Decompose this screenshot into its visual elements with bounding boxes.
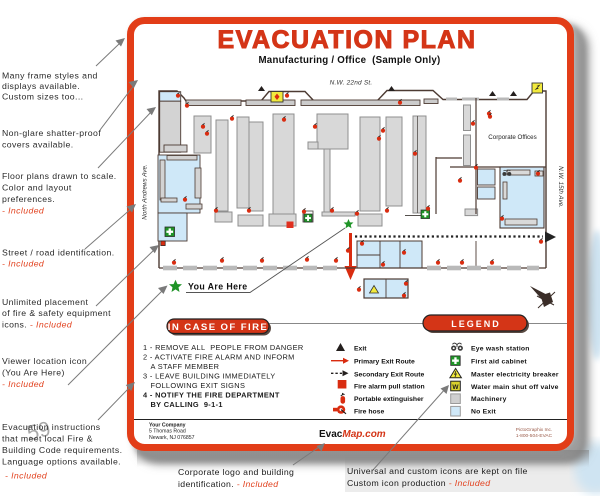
svg-text:Fire alarm pull station: Fire alarm pull station (354, 383, 425, 390)
svg-text:- Included: - Included (2, 379, 45, 389)
svg-text:- Included: - Included (2, 259, 45, 269)
svg-text:Viewer location icon: Viewer location icon (2, 356, 87, 366)
svg-text:Primary Exit Route: Primary Exit Route (354, 359, 415, 366)
svg-text:Unlimited placement: Unlimited placement (2, 297, 88, 307)
svg-text:- Included: - Included (2, 206, 45, 216)
svg-text:covers available.: covers available. (2, 139, 74, 149)
svg-text:First aid cabinet: First aid cabinet (471, 359, 527, 366)
svg-text:4 - NOTIFY THE FIRE DEPARTMENT: 4 - NOTIFY THE FIRE DEPARTMENT (143, 391, 280, 400)
svg-text:Master electricity breaker: Master electricity breaker (471, 371, 559, 378)
svg-text:Machinery: Machinery (471, 396, 507, 403)
svg-text:North Andrews Ave.: North Andrews Ave. (142, 164, 149, 219)
svg-text:Eye wash station: Eye wash station (471, 345, 530, 352)
svg-text:Color and layout: Color and layout (2, 183, 72, 193)
svg-text:You Are Here: You Are Here (188, 282, 248, 292)
svg-text:Many frame styles and: Many frame styles and (2, 71, 98, 81)
svg-text:EVACUATION PLAN: EVACUATION PLAN (217, 26, 476, 54)
svg-text:Evacuation instructions: Evacuation instructions (2, 422, 101, 432)
svg-text:2 - ACTIVATE FIRE ALARM AND IN: 2 - ACTIVATE FIRE ALARM AND INFORM (143, 353, 295, 362)
svg-text:Floor plans drawn to scale.: Floor plans drawn to scale. (2, 171, 117, 181)
svg-text:Universal and custom icons are: Universal and custom icons are kept on f… (347, 466, 528, 476)
svg-text:Building Code requirements.: Building Code requirements. (2, 445, 122, 455)
svg-text:Custom icon production - Inclu: Custom icon production - Included (347, 478, 491, 488)
svg-text:displays available.: displays available. (2, 81, 80, 91)
svg-text:Corporate Offices: Corporate Offices (488, 134, 536, 141)
svg-text:N.W. 22nd St.: N.W. 22nd St. (330, 79, 373, 86)
svg-text:that meet local Fire &: that meet local Fire & (2, 434, 93, 444)
svg-text:No Exit: No Exit (471, 409, 496, 416)
svg-text:Water main shut off valve: Water main shut off valve (471, 384, 559, 391)
svg-text:1-800-504-EVAC: 1-800-504-EVAC (516, 433, 553, 439)
svg-text:Corporate logo and building: Corporate logo and building (178, 467, 294, 477)
svg-text:Newark, NJ 076857: Newark, NJ 076857 (149, 435, 195, 441)
svg-text:of fire & safety equipment: of fire & safety equipment (2, 308, 111, 318)
svg-text:3 - LEAVE BUILDING IMMEDIATELY: 3 - LEAVE BUILDING IMMEDIATELY (143, 372, 275, 381)
svg-text:identification. - Included: identification. - Included (178, 479, 279, 489)
svg-text:Non-glare shatter-proof: Non-glare shatter-proof (2, 128, 101, 138)
svg-text:Exit: Exit (354, 345, 367, 352)
svg-text:PictoGraphix Inc.: PictoGraphix Inc. (516, 427, 553, 433)
svg-text:A STAFF MEMBER: A STAFF MEMBER (151, 362, 220, 371)
svg-text:Street / road identification.: Street / road identification. (2, 248, 115, 258)
svg-text:Secondary Exit Route: Secondary Exit Route (354, 371, 424, 378)
svg-text:Custom sizes too...: Custom sizes too... (2, 92, 83, 102)
svg-text:LEGEND: LEGEND (451, 319, 501, 329)
svg-text:Manufacturing / Office (Sampl: Manufacturing / Office (Sample Only) (258, 55, 440, 66)
svg-text:5 Thomas Road: 5 Thomas Road (149, 429, 186, 435)
svg-text:(You Are Here): (You Are Here) (2, 368, 65, 378)
svg-text:Your Company: Your Company (149, 423, 186, 429)
svg-text:1 - REMOVE ALL PEOPLE FROM DA: 1 - REMOVE ALL PEOPLE FROM DANGER (143, 343, 304, 352)
svg-text:N.W. 15th Ave.: N.W. 15th Ave. (557, 166, 564, 208)
svg-text:icons. - Included: icons. - Included (2, 320, 73, 330)
svg-text:EvacMap.com: EvacMap.com (319, 429, 386, 440)
svg-text:BY CALLING 9-1-1: BY CALLING 9-1-1 (151, 400, 223, 409)
svg-text:Portable extinguisher: Portable extinguisher (354, 396, 424, 403)
svg-text:IN CASE OF FIRE: IN CASE OF FIRE (168, 322, 268, 333)
svg-text:FOLLOWING EXIT SIGNS: FOLLOWING EXIT SIGNS (151, 381, 246, 390)
svg-text:Language options available.: Language options available. (2, 457, 121, 467)
svg-text:Fire hose: Fire hose (354, 409, 384, 416)
svg-text:W: W (452, 384, 459, 391)
svg-text:- Included: - Included (5, 471, 48, 481)
svg-text:preferences.: preferences. (2, 194, 55, 204)
